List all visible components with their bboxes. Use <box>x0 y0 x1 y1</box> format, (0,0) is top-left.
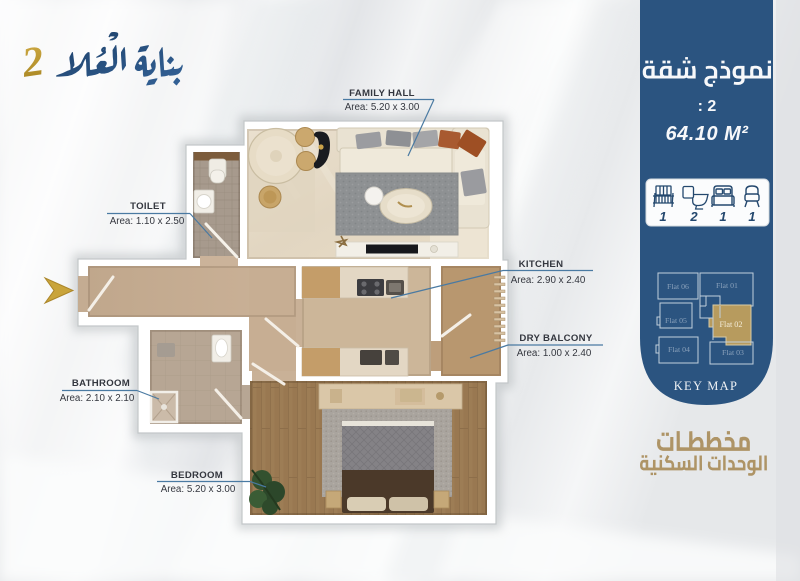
svg-text:1: 1 <box>719 209 726 224</box>
svg-text:Area: 1.10 x 2.50: Area: 1.10 x 2.50 <box>110 216 185 227</box>
svg-text:64.10 M²: 64.10 M² <box>666 123 750 145</box>
svg-text:2: 2 <box>689 209 698 224</box>
svg-text:Area: 2.10 x 2.10: Area: 2.10 x 2.10 <box>60 393 135 404</box>
svg-text:: 2: : 2 <box>698 98 717 115</box>
svg-text:Area: 1.00 x 2.40: Area: 1.00 x 2.40 <box>517 348 592 359</box>
svg-text:Flat 04: Flat 04 <box>668 345 690 354</box>
svg-text:1: 1 <box>659 209 666 224</box>
svg-text:Flat 06: Flat 06 <box>667 282 689 291</box>
svg-text:Area: 2.90 x 2.40: Area: 2.90 x 2.40 <box>511 275 586 286</box>
svg-text:Flat 02: Flat 02 <box>720 320 743 329</box>
svg-text:KEY MAP: KEY MAP <box>674 379 739 393</box>
svg-text:TOILET: TOILET <box>130 201 166 212</box>
svg-text:Flat 05: Flat 05 <box>665 316 687 325</box>
svg-text:Area: 5.20 x 3.00: Area: 5.20 x 3.00 <box>161 484 236 495</box>
svg-text:BATHROOM: BATHROOM <box>72 378 130 389</box>
svg-text:1: 1 <box>748 209 755 224</box>
svg-text:Area: 5.20 x 3.00: Area: 5.20 x 3.00 <box>345 102 420 113</box>
svg-text:FAMILY HALL: FAMILY HALL <box>349 88 415 99</box>
svg-text:Flat 03: Flat 03 <box>722 348 744 357</box>
svg-text:KITCHEN: KITCHEN <box>519 259 564 270</box>
svg-text:BEDROOM: BEDROOM <box>171 470 223 481</box>
svg-text:DRY BALCONY: DRY BALCONY <box>519 333 592 344</box>
svg-text:Flat 01: Flat 01 <box>716 281 738 290</box>
